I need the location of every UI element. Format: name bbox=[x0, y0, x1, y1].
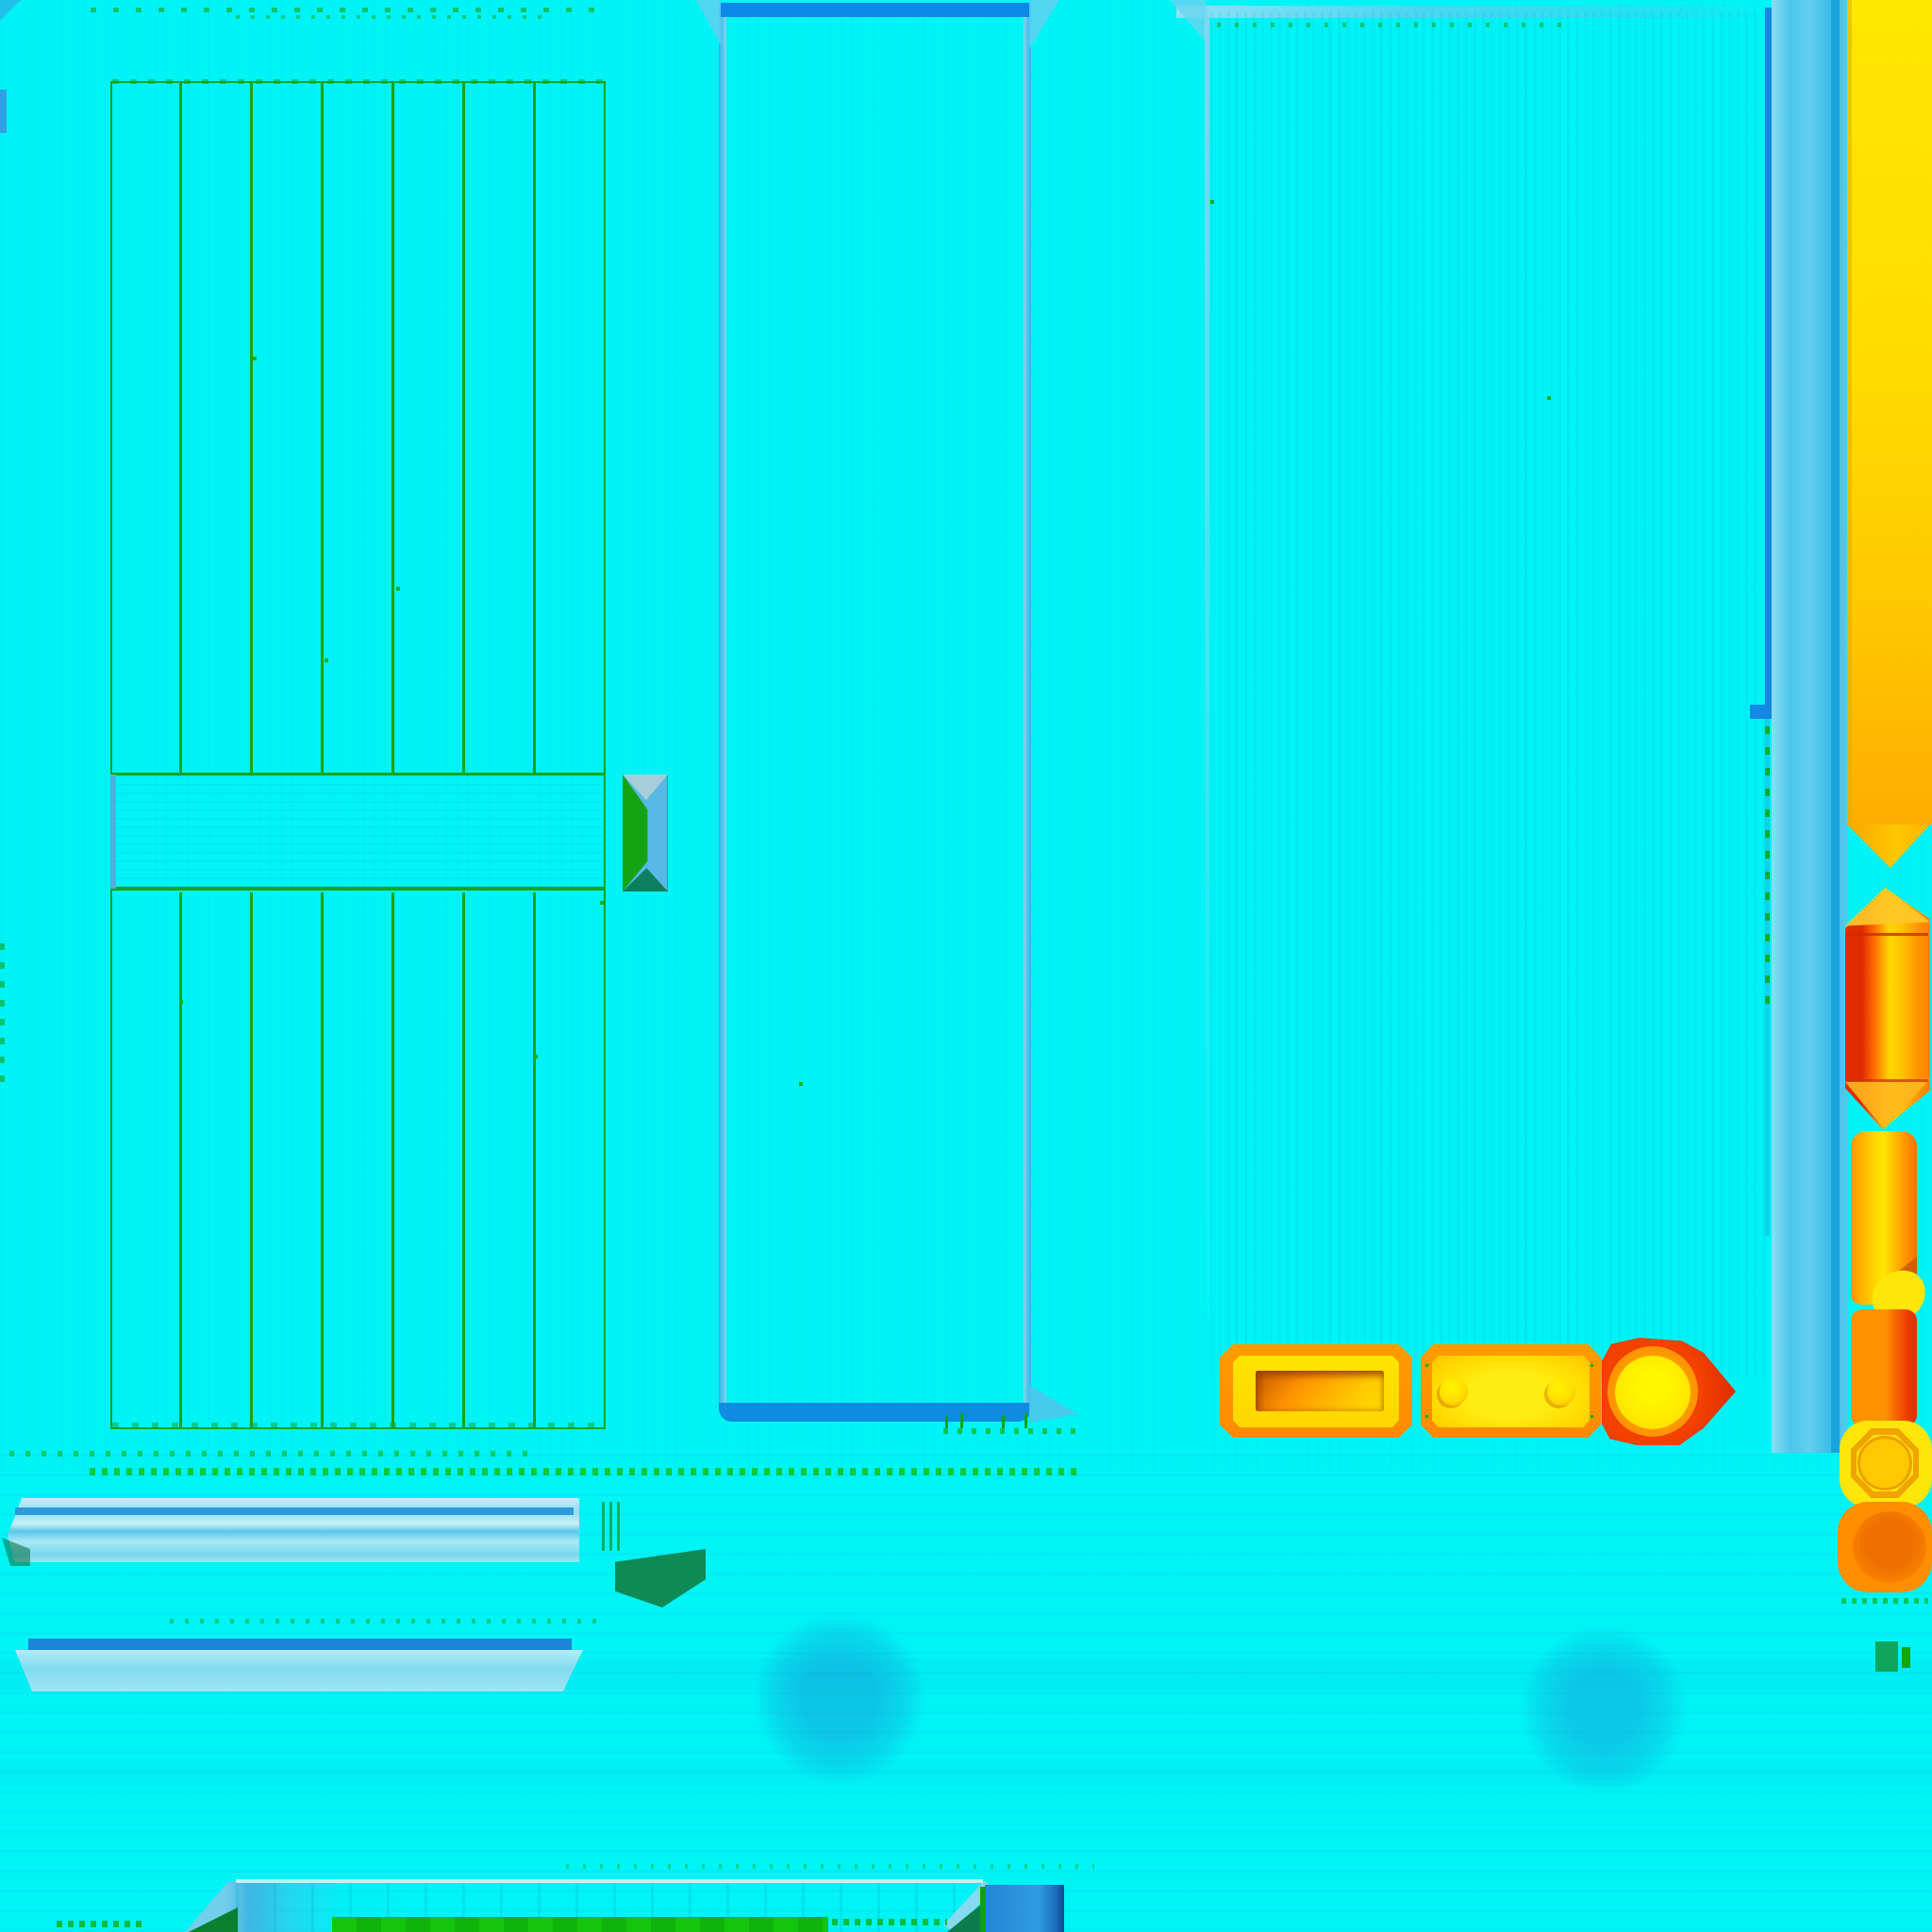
panel2-left-border bbox=[719, 9, 726, 1411]
door-plank-seam bbox=[391, 892, 394, 1427]
green-speck bbox=[396, 587, 400, 591]
door-plank-seam bbox=[533, 892, 536, 1427]
green-speck bbox=[1425, 1364, 1428, 1367]
green-tick bbox=[960, 1413, 963, 1428]
capsule-seam bbox=[1847, 933, 1928, 936]
yellow-strip bbox=[1847, 0, 1932, 824]
door-plank-seam bbox=[179, 83, 182, 773]
green-speck bbox=[799, 1082, 803, 1086]
door-bottom-dashes bbox=[112, 1423, 606, 1428]
door-plank-seam bbox=[321, 892, 324, 1427]
green-tick bbox=[1002, 1415, 1005, 1428]
green-speck bbox=[1425, 1415, 1428, 1418]
orange-boss-circle bbox=[1853, 1511, 1926, 1583]
noise-row bbox=[91, 8, 600, 12]
bottom-green-strip bbox=[332, 1917, 828, 1932]
door-frame bbox=[110, 81, 606, 1429]
bottom-board-top-line bbox=[236, 1879, 983, 1883]
panel3-right-tick bbox=[1750, 705, 1773, 719]
green-speck bbox=[600, 901, 604, 905]
noise-row bbox=[170, 1619, 604, 1624]
texture-canvas bbox=[0, 0, 1932, 1932]
door-rail-left-edge bbox=[110, 774, 116, 889]
door-plank-seam bbox=[250, 892, 253, 1427]
panel2-right-border bbox=[1024, 9, 1031, 1411]
green-speck bbox=[534, 1055, 538, 1058]
door-plank-seam bbox=[462, 892, 465, 1427]
knob-boss-center bbox=[1615, 1356, 1690, 1429]
teal-wedge-hatch bbox=[602, 1502, 623, 1551]
board-a-blue-line bbox=[15, 1507, 574, 1515]
green-tick bbox=[945, 1415, 948, 1428]
board-b-body bbox=[15, 1650, 583, 1691]
green-speck bbox=[1547, 396, 1551, 400]
blue-glow bbox=[755, 1613, 924, 1783]
noise-row bbox=[9, 1451, 528, 1457]
teal-bar bbox=[1875, 1641, 1898, 1672]
noise-col bbox=[0, 943, 5, 1085]
panel3-interior-streaks bbox=[1210, 11, 1765, 1377]
right-band-line bbox=[1831, 0, 1840, 1453]
noise-row bbox=[236, 15, 547, 19]
door-plank-seam bbox=[533, 83, 536, 773]
capsule-seam bbox=[1847, 1079, 1928, 1082]
door-plank-seam bbox=[321, 83, 324, 773]
door-top-dashes bbox=[112, 79, 606, 84]
screw-knob bbox=[1440, 1377, 1468, 1406]
screw-knob bbox=[1547, 1377, 1575, 1406]
door-plank-seam bbox=[250, 83, 253, 773]
green-speck bbox=[1591, 1415, 1593, 1418]
slot-recess bbox=[1256, 1371, 1384, 1411]
green-speck bbox=[253, 357, 257, 360]
yellow-strip-left-shade bbox=[1847, 0, 1852, 824]
noise-row bbox=[832, 1919, 947, 1925]
noise-row bbox=[1217, 23, 1566, 27]
door-rail-bottom-seam bbox=[112, 887, 606, 891]
panel2-bottom-bar bbox=[719, 1403, 1031, 1422]
panel2-top-bar bbox=[719, 3, 1031, 17]
noise-row bbox=[1841, 1598, 1928, 1604]
green-bar bbox=[1902, 1647, 1910, 1668]
door-plank-seam bbox=[462, 83, 465, 773]
green-speck bbox=[1210, 200, 1214, 204]
blue-edge-tick bbox=[0, 90, 7, 133]
door-plank-seam bbox=[179, 892, 182, 1427]
noise-col bbox=[1765, 726, 1770, 1009]
orange-segment bbox=[1851, 1309, 1917, 1426]
green-speck bbox=[1591, 1364, 1593, 1367]
green-speck bbox=[325, 658, 328, 662]
nut-circle bbox=[1857, 1436, 1912, 1491]
door-rail-grain bbox=[112, 775, 606, 887]
noise-row bbox=[90, 1468, 1080, 1475]
board-b-blue-line bbox=[28, 1639, 572, 1650]
blue-glow bbox=[1521, 1626, 1687, 1792]
panel3-left-border bbox=[1205, 9, 1209, 1379]
green-speck bbox=[179, 1000, 183, 1004]
bottom-blue-panel-green-line bbox=[980, 1887, 986, 1932]
noise-row bbox=[566, 1864, 1094, 1869]
green-tick bbox=[1024, 1413, 1027, 1428]
bottom-blue-panel bbox=[985, 1885, 1064, 1932]
noise-row bbox=[943, 1428, 1085, 1434]
door-plank-seam bbox=[391, 83, 394, 773]
noise-row bbox=[57, 1921, 143, 1927]
